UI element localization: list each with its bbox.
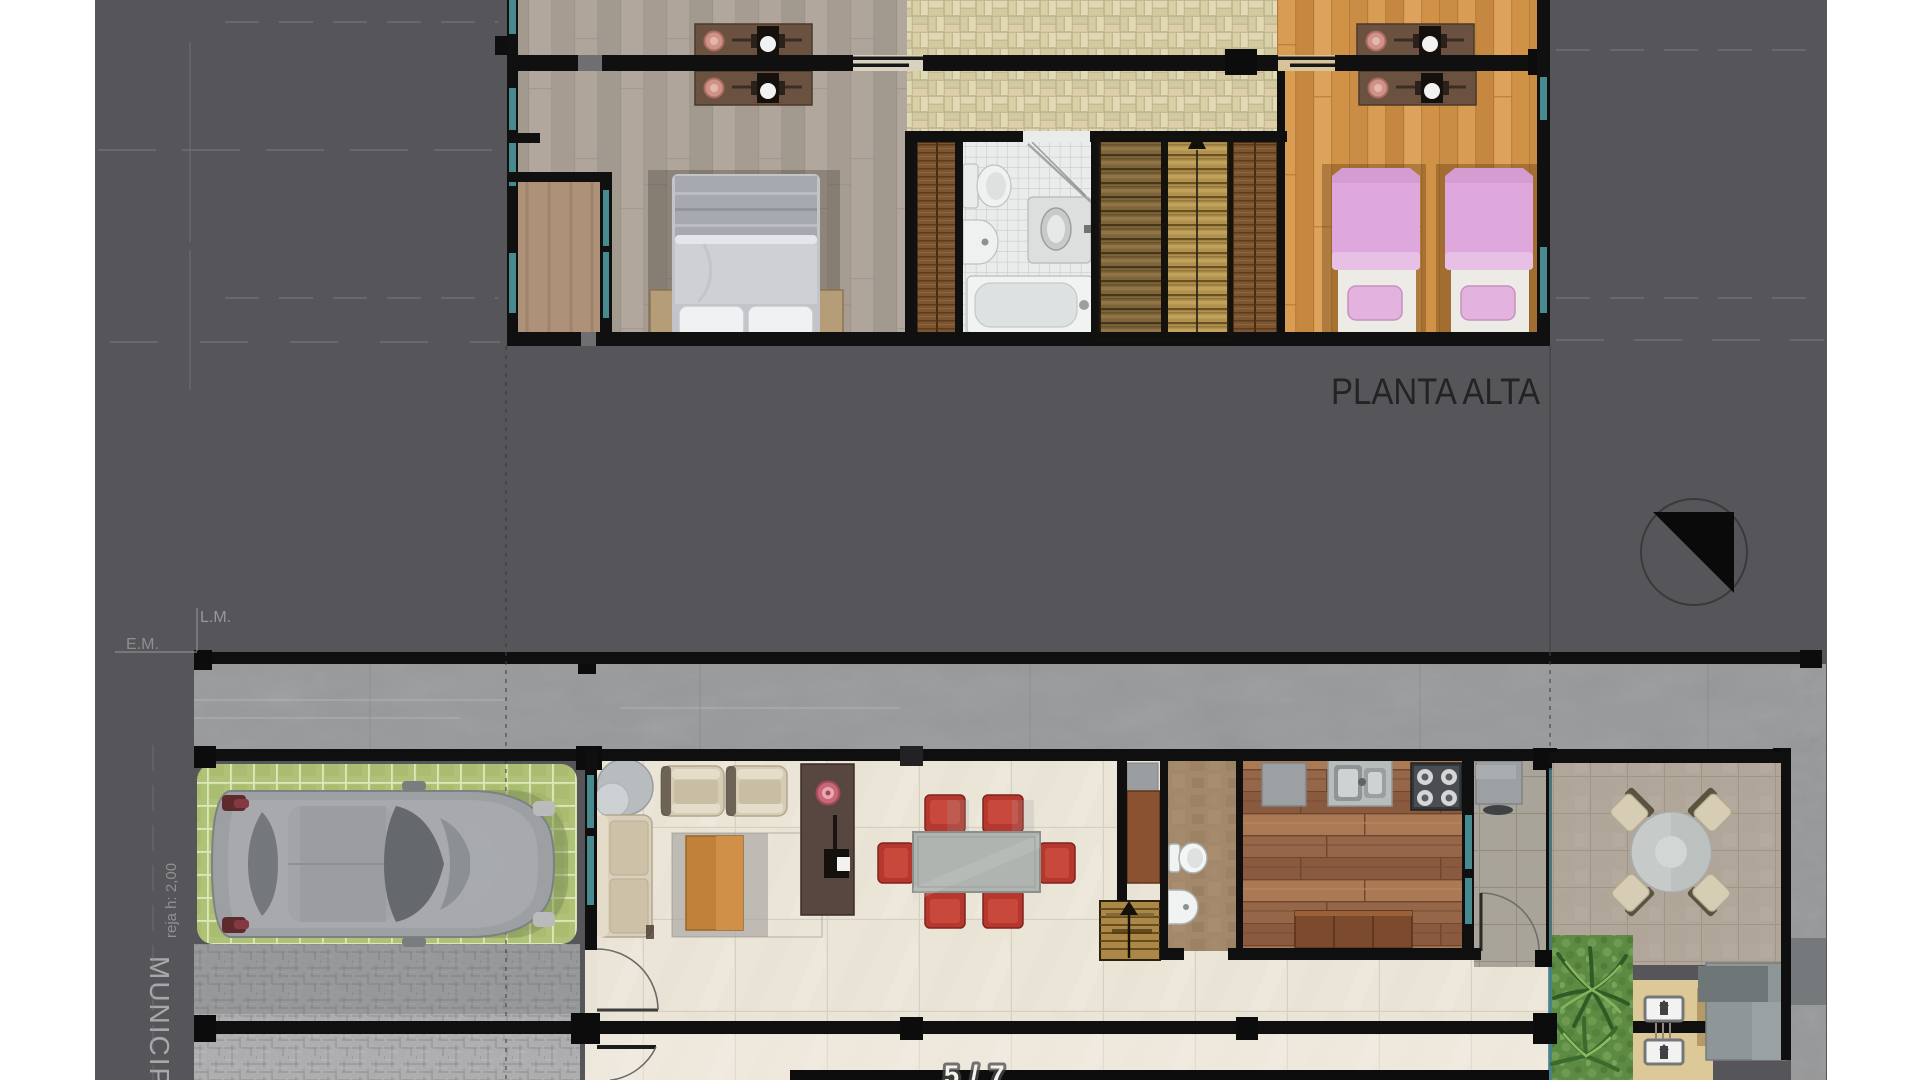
svg-text:MUNICIPAL: MUNICIPAL <box>144 956 175 1080</box>
svg-text:reja h: 2,00: reja h: 2,00 <box>163 863 180 938</box>
svg-text:L.M.: L.M. <box>200 609 231 626</box>
svg-text:PLANTA ALTA: PLANTA ALTA <box>1331 371 1540 412</box>
svg-text:5 / 7: 5 / 7 <box>944 1060 1007 1080</box>
svg-text:E.M.: E.M. <box>126 636 159 653</box>
